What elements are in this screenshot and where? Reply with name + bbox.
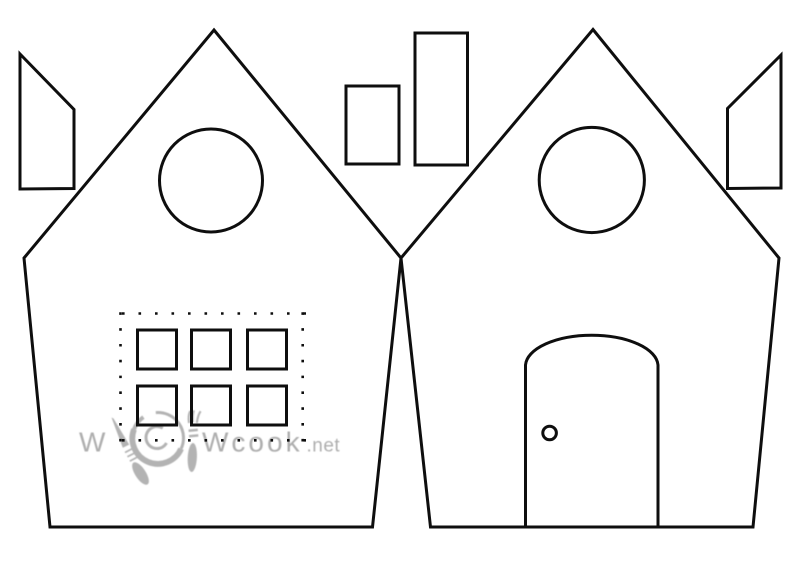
svg-text:.net: .net xyxy=(307,436,341,457)
svg-text:W: W xyxy=(79,427,106,458)
svg-text:Wcook: Wcook xyxy=(202,427,303,458)
